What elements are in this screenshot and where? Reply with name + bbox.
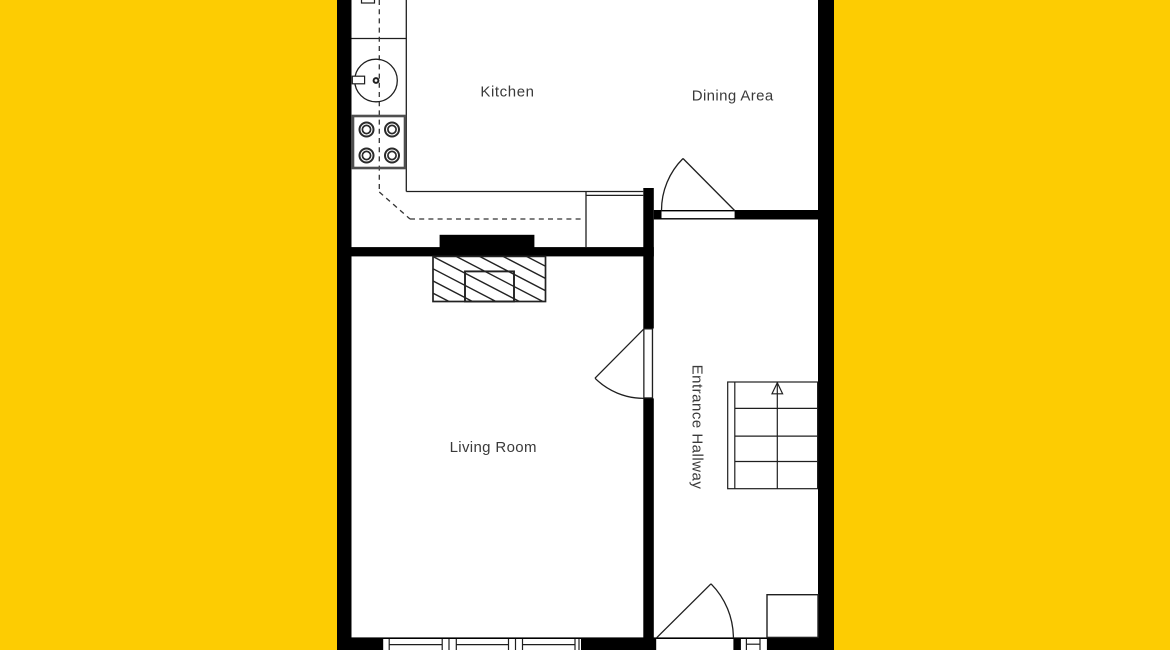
svg-text:Living Room: Living Room bbox=[450, 439, 537, 456]
svg-text:Kitchen: Kitchen bbox=[480, 84, 534, 101]
svg-text:Entrance Hallway: Entrance Hallway bbox=[688, 365, 705, 490]
svg-text:Dining Area: Dining Area bbox=[692, 88, 774, 105]
